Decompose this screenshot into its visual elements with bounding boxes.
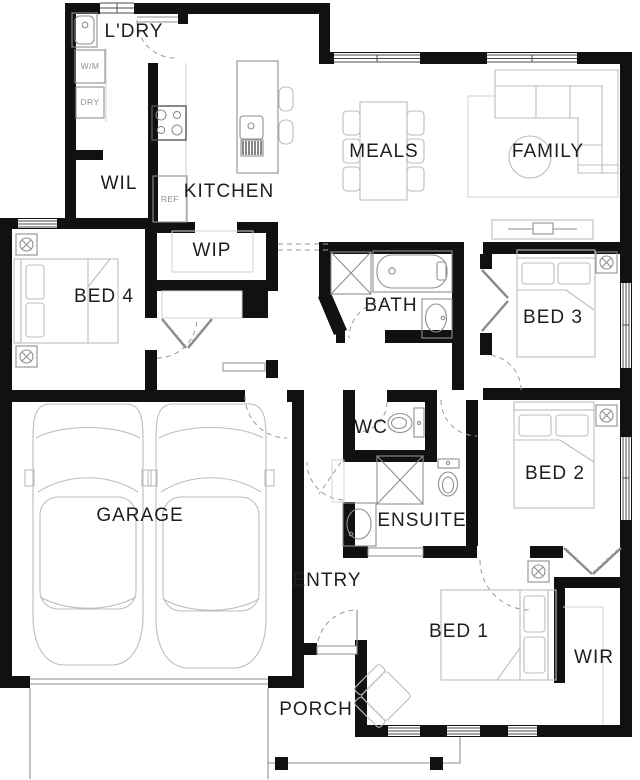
- room-label-bed4: BED 4: [74, 286, 134, 308]
- room-label-bath: BATH: [364, 295, 417, 317]
- dishwasher: [241, 140, 263, 156]
- dining-chair: [343, 167, 360, 191]
- shower: [331, 252, 371, 294]
- wc-toilet: [388, 408, 424, 437]
- bed3-robe-doors: [482, 270, 508, 331]
- floor-plan: L'DRY WIL KITCHEN WIP MEALS FAMILY BED 4…: [0, 0, 640, 780]
- ensuite-opening: [368, 548, 423, 556]
- dining-chair: [407, 167, 424, 191]
- garage-panel-door: [30, 679, 268, 684]
- bedside-lamp: [528, 561, 549, 582]
- window-meals: [334, 53, 420, 64]
- bed2-robe-doors: [564, 548, 621, 574]
- bedside-lamp: [16, 346, 37, 367]
- bar-stool: [279, 87, 293, 111]
- driveway-edges: [30, 688, 268, 779]
- room-label-kitchen: KITCHEN: [184, 181, 274, 203]
- bedside-lamp: [16, 234, 37, 255]
- bed2-bed: [514, 402, 594, 508]
- bedside-lamp: [596, 405, 617, 426]
- bed3-door-swing: [486, 355, 521, 390]
- front-door: [317, 610, 357, 654]
- linen-shelf: [162, 291, 242, 318]
- porch-post: [275, 757, 288, 770]
- room-label-entry: ENTRY: [292, 570, 361, 592]
- bed3-bed: [517, 250, 595, 357]
- bar-stool: [279, 120, 293, 144]
- dining-chair: [407, 111, 424, 135]
- room-label-bed3: BED 3: [523, 307, 583, 329]
- car: [148, 404, 274, 668]
- bed2-furniture: [514, 402, 617, 508]
- linen-bifold-doors: [162, 319, 212, 348]
- porch-post: [430, 757, 443, 770]
- window-wir: [508, 726, 537, 736]
- room-label-bed2: BED 2: [525, 463, 585, 485]
- window-bed3: [621, 283, 631, 368]
- ensuite-toilet: [438, 459, 459, 496]
- dining-chair: [343, 111, 360, 135]
- appliance-label-dry: DRY: [81, 97, 100, 107]
- window-bed1-a: [388, 726, 420, 736]
- bed3-furniture: [517, 250, 617, 357]
- appliance-label-wm: W/M: [81, 61, 100, 71]
- window-family: [487, 53, 577, 64]
- floor-plan-drawing: [0, 0, 640, 780]
- island-sink: [240, 116, 263, 139]
- room-label-family: FAMILY: [512, 141, 584, 163]
- ensuite-shower: [377, 456, 423, 504]
- car: [25, 404, 151, 665]
- window-bed1-b: [447, 726, 480, 736]
- window-laundry: [100, 1, 134, 15]
- window-bed2: [621, 437, 631, 520]
- linen-nook-door-swing: [307, 462, 343, 500]
- bedside-lamp: [596, 252, 617, 273]
- room-label-bed1: BED 1: [429, 621, 489, 643]
- room-label-meals: MEALS: [349, 141, 418, 163]
- appliance-label-ref: REF: [161, 194, 179, 204]
- room-label-wip: WIP: [193, 240, 232, 262]
- room-label-laundry: L'DRY: [105, 21, 164, 43]
- bathtub: [373, 251, 452, 292]
- room-label-wir: WIR: [574, 647, 614, 669]
- room-label-wil: WIL: [101, 173, 138, 195]
- window-bed4: [18, 219, 57, 228]
- room-label-wc: WC: [354, 417, 388, 439]
- garage-contents: [25, 404, 274, 668]
- room-label-porch: PORCH: [279, 699, 353, 721]
- tv-unit: [492, 220, 593, 239]
- linen-nook: [319, 460, 344, 502]
- room-label-ensuite: ENSUITE: [377, 510, 466, 532]
- bed1-door-swing: [480, 560, 530, 610]
- room-label-garage: GARAGE: [96, 505, 183, 527]
- hall-opening: [223, 363, 265, 371]
